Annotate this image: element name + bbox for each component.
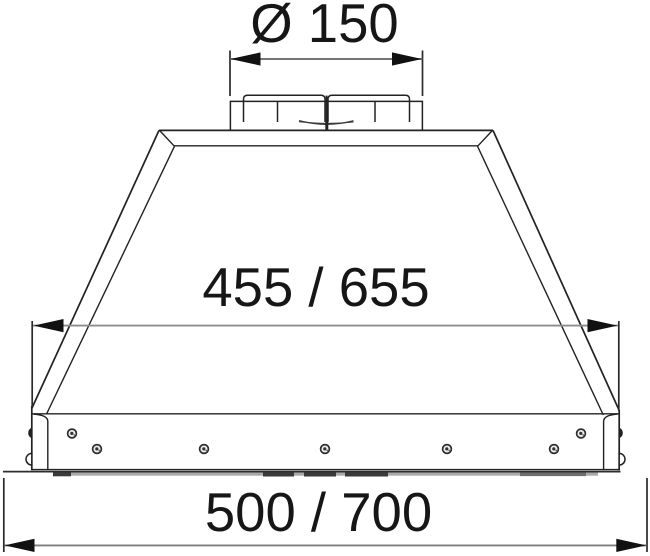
svg-text:500 / 700: 500 / 700 (205, 482, 432, 543)
svg-text:Ø 150: Ø 150 (250, 0, 398, 54)
svg-text:455 / 655: 455 / 655 (202, 257, 429, 318)
